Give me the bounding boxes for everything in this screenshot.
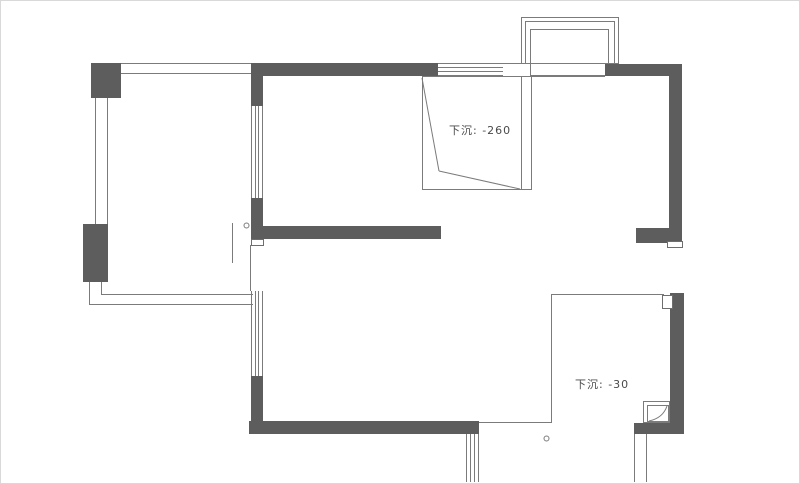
corner-fixture-inner [647, 405, 669, 422]
wall-pillar-mid-upper [251, 63, 263, 106]
sunken-slab-inner-line [521, 76, 522, 190]
wall-edge-line [250, 245, 251, 291]
sunken-area-boundary [479, 422, 551, 423]
bay-sill-line [101, 294, 253, 295]
wall-top [263, 63, 438, 76]
wall-pillar-left [83, 224, 108, 282]
drain-symbol [544, 436, 549, 441]
wall-bottom-right-horz [634, 423, 684, 434]
top-wall-band [121, 63, 251, 74]
window-left [95, 98, 108, 224]
window-bottom-right [634, 434, 647, 482]
frame-marker [662, 295, 673, 309]
wall-bottom-right-vert [670, 293, 684, 433]
wall-pillar-mid [251, 198, 263, 239]
door-opening-line [232, 223, 233, 263]
window-bottom-left [251, 291, 263, 376]
wall-right-stub [636, 228, 669, 243]
sunken-depth-label-top: 下沉: -260 [449, 124, 511, 137]
wall-right [669, 76, 682, 243]
floor-plan-canvas: 下沉: -260 下沉: -30 [0, 0, 800, 484]
wall-top-right [605, 64, 682, 76]
drain-symbol [244, 223, 249, 228]
bay-sill-line [89, 304, 253, 305]
wall-bottom-left-vert [251, 376, 263, 426]
flue-box-inner [530, 29, 609, 76]
wall-pillar-top-left [91, 63, 121, 98]
sunken-depth-label-bottom: 下沉: -30 [575, 378, 629, 391]
frame-marker [667, 241, 683, 248]
window-top [438, 63, 503, 76]
wall-outline-line [503, 63, 522, 64]
bay-sill-line [89, 282, 90, 305]
frame-marker [251, 239, 264, 246]
bay-sill-line [101, 282, 102, 295]
window-bottom-mid [466, 434, 479, 482]
wall-bottom [249, 421, 479, 434]
sunken-area-boundary [551, 294, 664, 295]
wall-mid [263, 226, 441, 239]
window-mid-upper [251, 106, 263, 198]
sunken-area-boundary [551, 294, 552, 423]
